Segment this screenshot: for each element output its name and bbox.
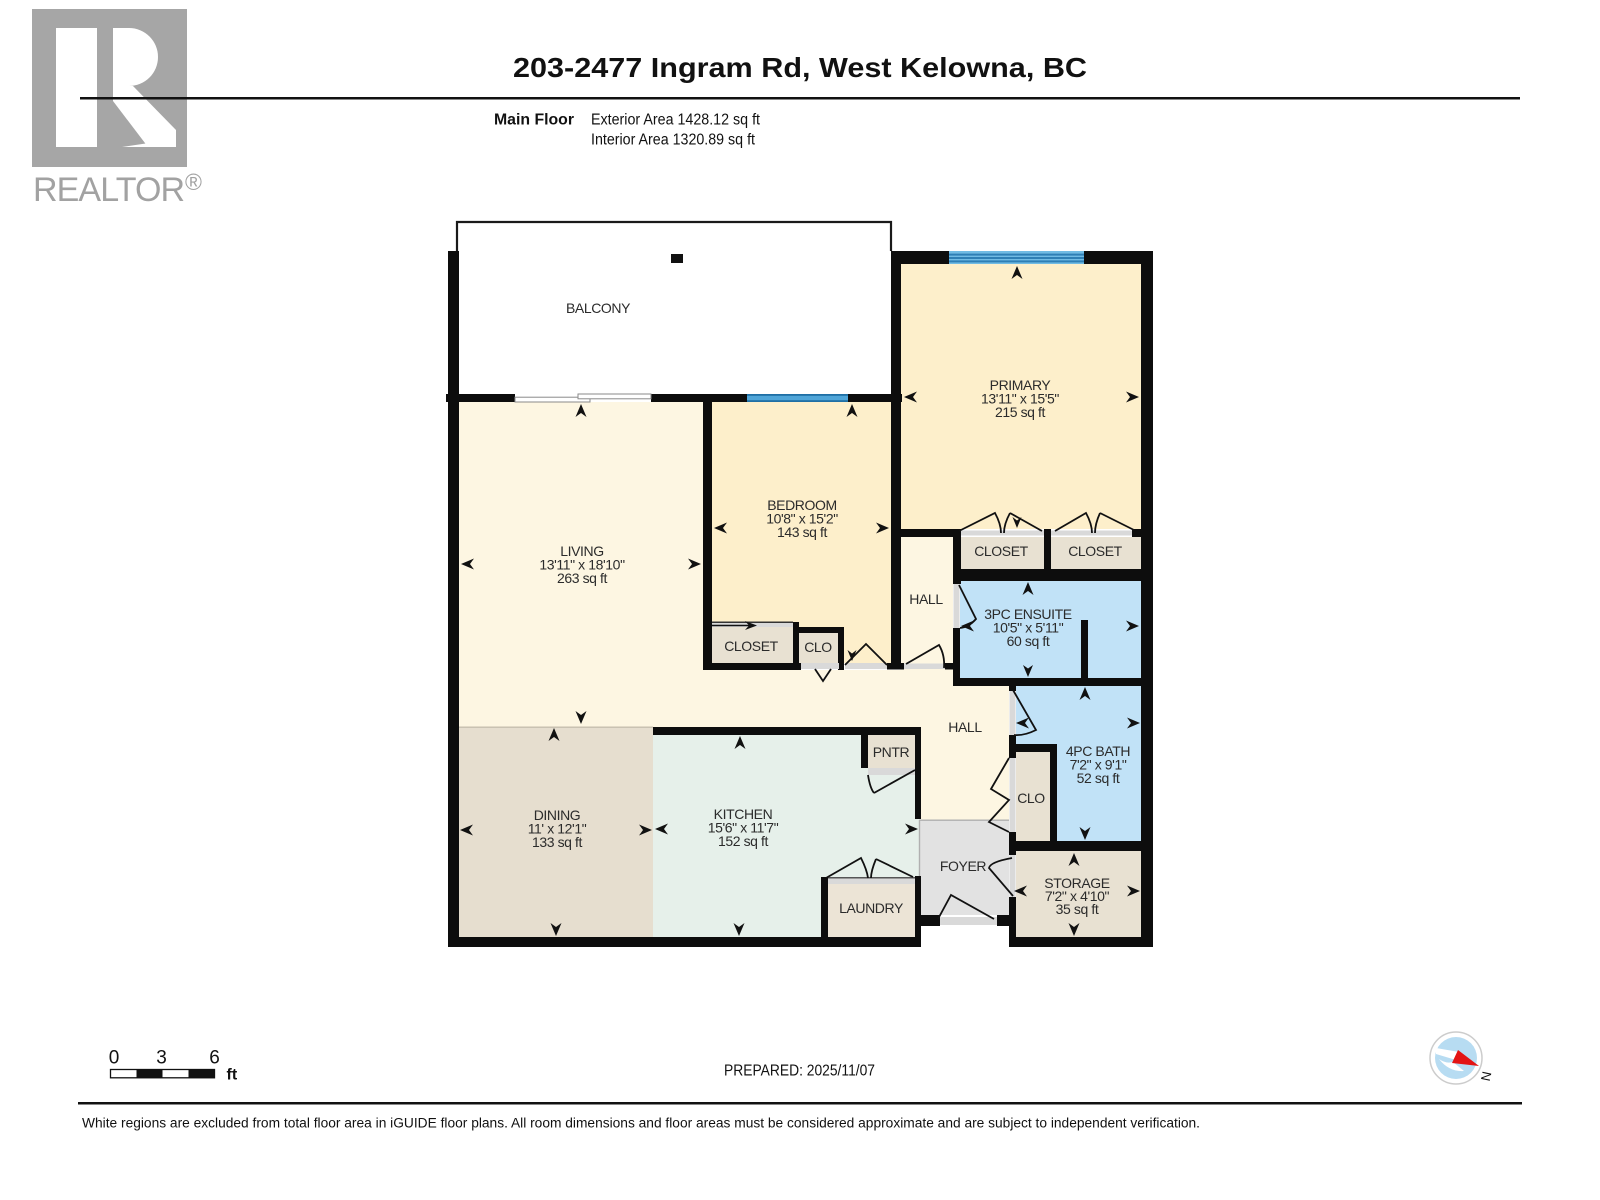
svg-text:CLO: CLO [804,639,832,655]
svg-text:6: 6 [209,1048,220,1069]
svg-text:Exterior Area 1428.12 sq ft: Exterior Area 1428.12 sq ft [591,112,761,129]
svg-text:3: 3 [156,1048,167,1069]
svg-text:Main Floor: Main Floor [494,112,574,129]
svg-text:REALTOR: REALTOR [33,171,184,209]
svg-text:133 sq ft: 133 sq ft [532,834,583,850]
svg-text:White regions are excluded fro: White regions are excluded from total fl… [82,1116,1200,1132]
svg-text:52 sq ft: 52 sq ft [1077,770,1120,786]
svg-text:60 sq ft: 60 sq ft [1007,633,1050,649]
svg-text:Interior Area 1320.89 sq ft: Interior Area 1320.89 sq ft [591,132,756,149]
svg-text:152 sq ft: 152 sq ft [718,833,769,849]
svg-text:143 sq ft: 143 sq ft [777,524,828,540]
svg-text:35 sq ft: 35 sq ft [1056,901,1099,917]
svg-text:HALL: HALL [909,591,943,607]
svg-text:CLOSET: CLOSET [724,638,778,654]
svg-text:LAUNDRY: LAUNDRY [839,900,904,916]
svg-text:HALL: HALL [948,719,982,735]
svg-text:215 sq ft: 215 sq ft [995,404,1046,420]
svg-text:FOYER: FOYER [940,858,987,874]
svg-text:203-2477 Ingram Rd, West Kelow: 203-2477 Ingram Rd, West Kelowna, BC [513,52,1087,83]
svg-text:PNTR: PNTR [873,744,910,760]
svg-text:BALCONY: BALCONY [566,300,631,316]
svg-text:®: ® [185,169,202,195]
svg-text:263 sq ft: 263 sq ft [557,570,608,586]
svg-text:CLOSET: CLOSET [974,543,1028,559]
svg-text:0: 0 [109,1048,120,1069]
svg-text:PREPARED: 2025/11/07: PREPARED: 2025/11/07 [724,1063,875,1080]
svg-text:CLO: CLO [1017,790,1045,806]
svg-text:CLOSET: CLOSET [1068,543,1122,559]
svg-text:ft: ft [227,1067,238,1084]
